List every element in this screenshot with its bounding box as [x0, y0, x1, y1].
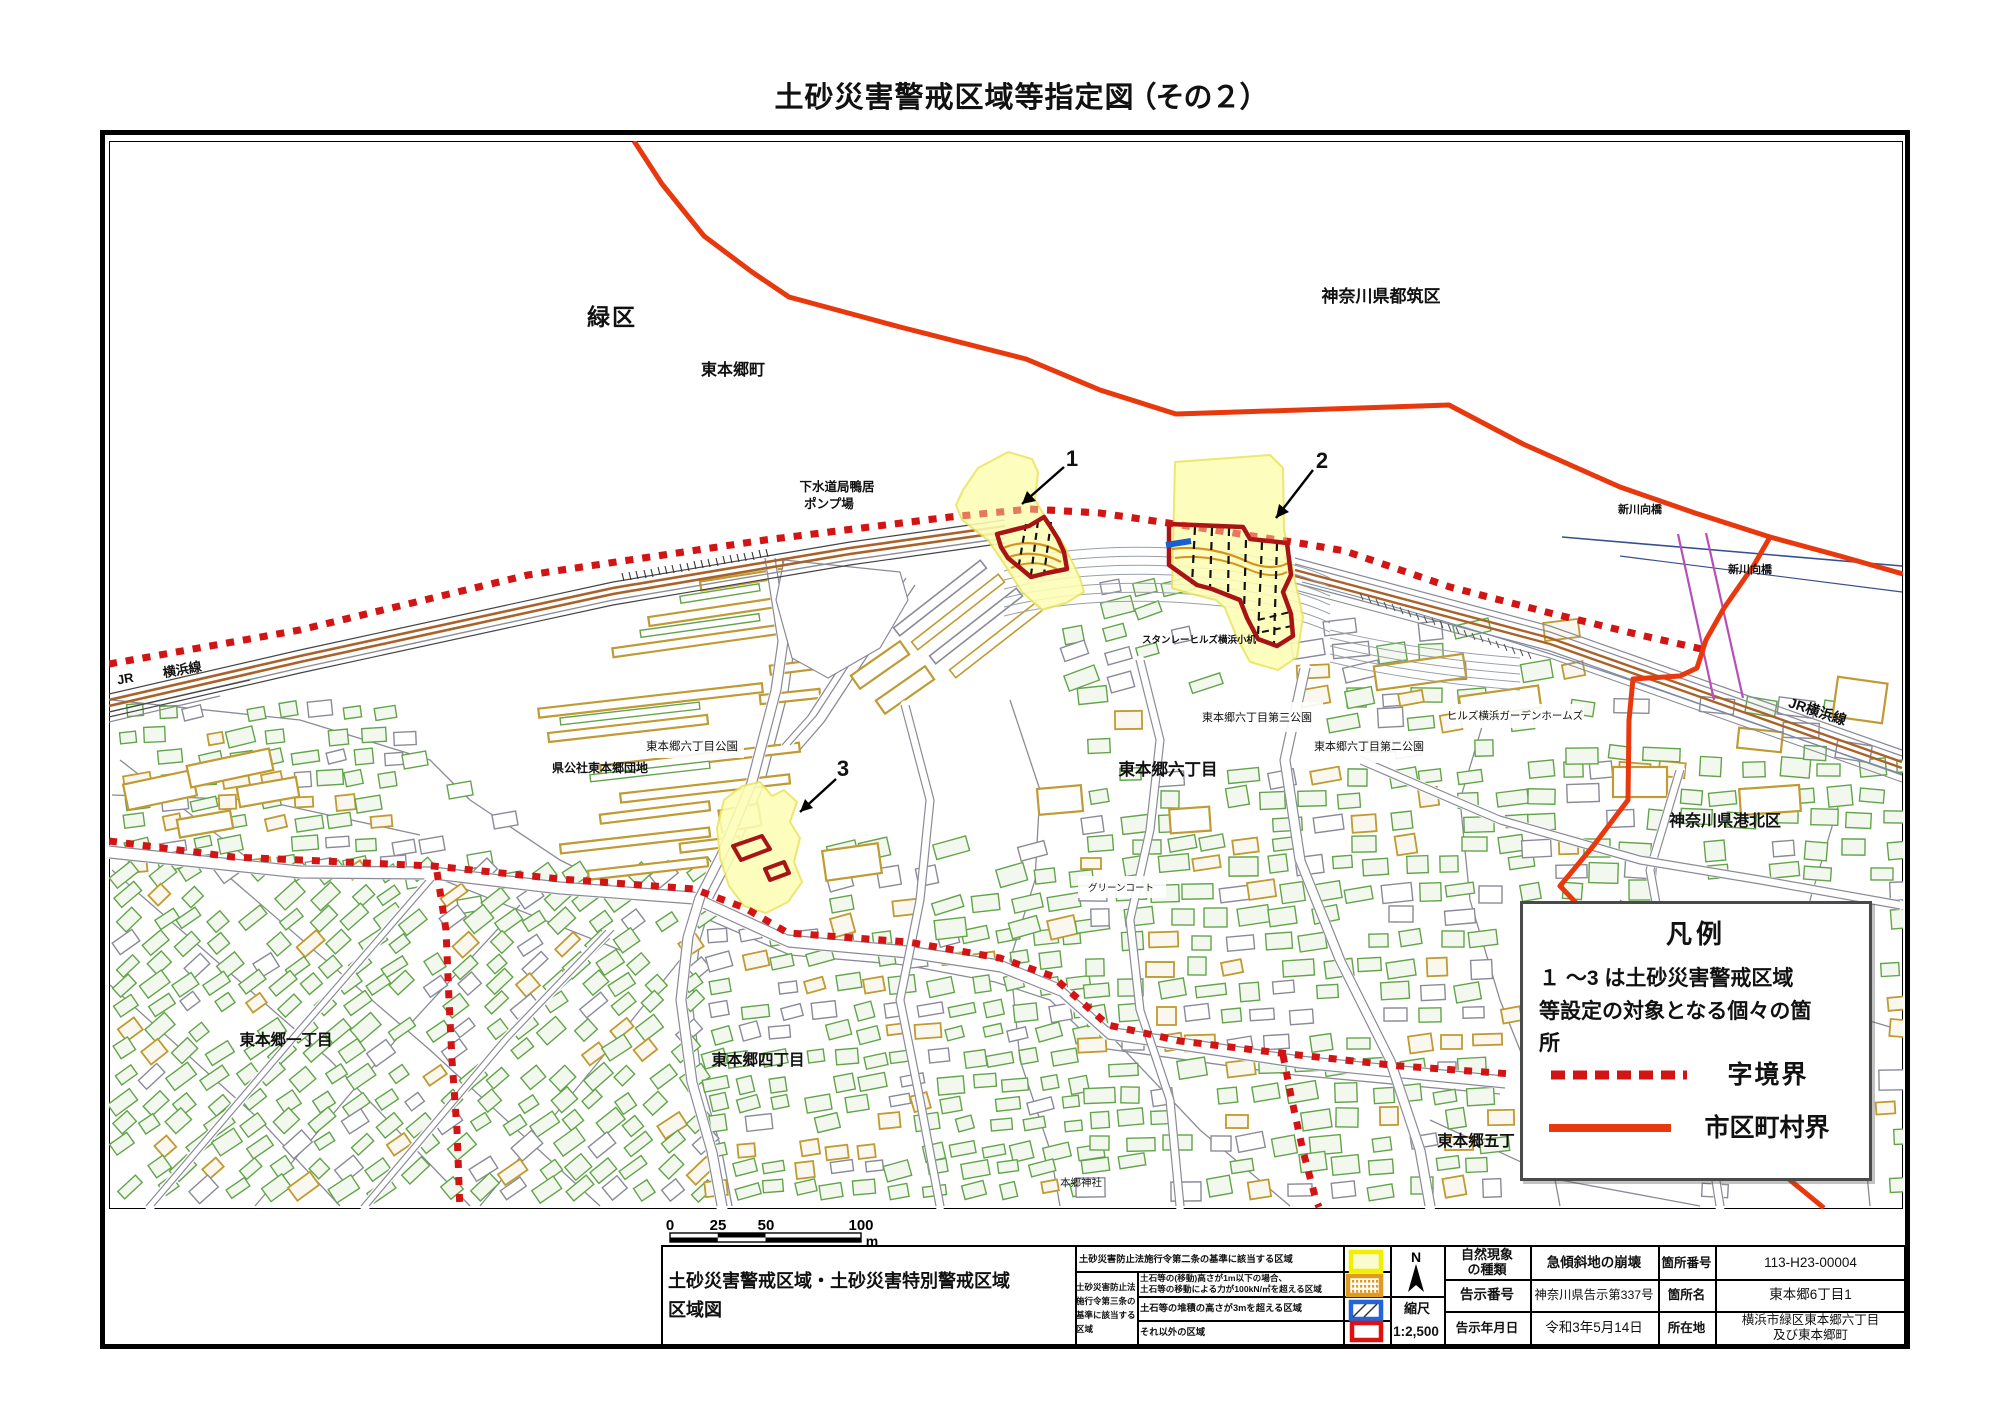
svg-text:東本郷町: 東本郷町	[701, 360, 765, 379]
svg-text:東本郷五丁: 東本郷五丁	[1437, 1131, 1515, 1150]
svg-text:JR: JR	[116, 670, 136, 688]
svg-text:1: 1	[1066, 446, 1078, 471]
svg-text:県公社東本郷団地: 県公社東本郷団地	[552, 760, 648, 775]
svg-text:東本郷六丁目第二公園: 東本郷六丁目第二公園	[1314, 739, 1424, 753]
svg-text:東本郷四丁目: 東本郷四丁目	[711, 1050, 804, 1069]
svg-text:東本郷一丁目: 東本郷一丁目	[239, 1030, 332, 1049]
svg-text:新川向橋: 新川向橋	[1728, 562, 1773, 576]
svg-text:神奈川県港北区: 神奈川県港北区	[1669, 811, 1781, 830]
svg-text:グリーンコート: グリーンコート	[1088, 882, 1154, 894]
svg-text:本郷神社: 本郷神社	[1060, 1176, 1102, 1189]
svg-text:緑区: 緑区	[587, 304, 637, 330]
svg-text:下水道局鴨居: 下水道局鴨居	[799, 479, 874, 494]
svg-text:東本郷六丁目公園: 東本郷六丁目公園	[646, 739, 738, 753]
svg-text:2: 2	[1316, 448, 1328, 473]
svg-text:0: 0	[666, 1217, 674, 1234]
svg-text:ヒルズ横浜ガーデンホームズ: ヒルズ横浜ガーデンホームズ	[1447, 709, 1583, 722]
svg-text:東本郷六丁目第三公園: 東本郷六丁目第三公園	[1202, 710, 1312, 724]
svg-text:3: 3	[837, 756, 849, 781]
svg-text:100: 100	[848, 1217, 873, 1234]
svg-text:50: 50	[758, 1217, 775, 1234]
svg-text:神奈川県都筑区: 神奈川県都筑区	[1322, 286, 1441, 306]
svg-text:東本郷六丁目: 東本郷六丁目	[1119, 759, 1218, 779]
svg-text:スタンレーヒルズ横浜小机: スタンレーヒルズ横浜小机	[1142, 634, 1257, 646]
svg-text:ポンプ場: ポンプ場	[804, 496, 854, 511]
svg-text:新川向橋: 新川向橋	[1618, 502, 1663, 516]
svg-text:横浜線: 横浜線	[162, 659, 204, 681]
svg-text:25: 25	[710, 1217, 727, 1234]
svg-text:N: N	[1411, 1249, 1421, 1265]
